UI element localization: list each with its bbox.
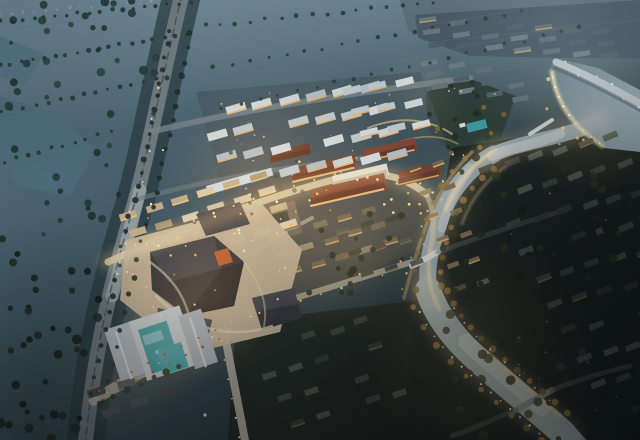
car-highway-2 <box>147 217 149 219</box>
car-highway-3 <box>162 149 164 151</box>
car-highway-1 <box>150 203 152 205</box>
aerial-night-town-rendering <box>0 0 640 440</box>
aerial-rendering-stage <box>0 0 640 440</box>
